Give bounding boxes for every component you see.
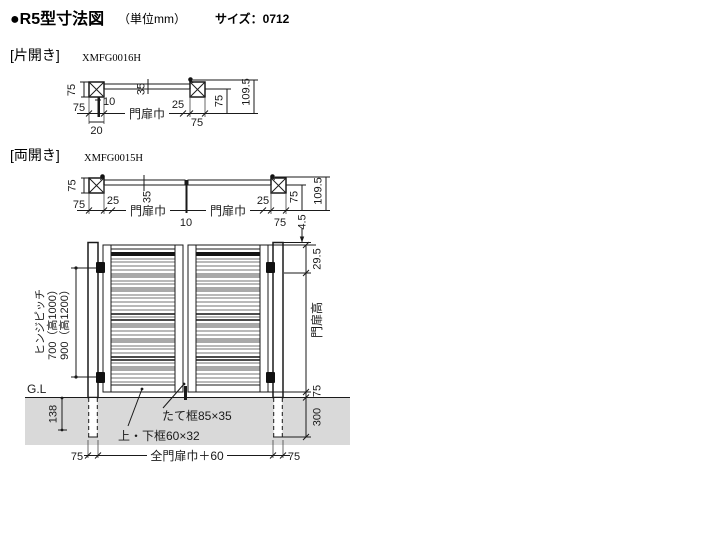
dim-25-right: 25 [257,195,269,207]
dim-25-left: 25 [107,195,119,207]
hinge-top-right [266,262,275,273]
hinge-pitch-label: ヒンジピッチ [34,289,47,355]
size-label: サイズ：0712 [215,11,290,26]
dim-gate-width-right: 門扉巾 [210,204,246,218]
page-title: ●R5型寸法図 [10,9,104,28]
dim-post-width-right: 75 [274,217,286,229]
single-swing-section: [片開き] XMFG0016H [10,47,258,137]
double-swing-code: XMFG0015H [84,153,143,164]
dim-75-right: 75 [214,95,226,107]
dim-25: 25 [172,99,184,111]
single-swing-label: [片開き] [10,47,60,63]
dim-35: 35 [142,191,154,203]
header: ●R5型寸法図 （単位mm） サイズ：0712 [10,9,290,28]
dim-29-5: 29.5 [312,248,324,269]
drawing-canvas: ●R5型寸法図 （単位mm） サイズ：0712 [片開き] XMFG0016H [0,0,720,540]
hinge-bottom-left [96,372,105,383]
elevation-drawing: ヒンジピッチ 700（高1000） 900（高1200） G.L 138 [25,214,350,463]
dim-post-height: 75 [67,179,79,191]
dim-gate-width: 門扉巾 [129,107,165,121]
callout-rail: 上・下框60×32 [118,429,200,443]
dim-75-gl: 75 [312,385,324,397]
dim-10-center: 10 [180,217,192,229]
single-swing-code: XMFG0016H [82,53,141,64]
single-swing-dimensions: 75 75 門扉巾 20 10 35 25 75 [66,78,258,137]
dim-post-width-right: 75 [191,117,203,129]
dim-post-width-left: 75 [73,199,85,211]
post-right-plan [190,82,205,97]
dim-total-109-5: 109.5 [313,177,325,205]
dim-post-width-left: 75 [73,102,85,114]
double-swing-section: [両開き] XMFG0015H [10,147,330,229]
hinge-pitch-700: 700（高1000） [45,284,59,360]
dim-75-bottom-right: 75 [288,451,300,463]
dim-10: 10 [103,96,115,108]
dim-gate-width-left: 門扉巾 [130,204,166,218]
dim-post-height: 75 [66,84,78,96]
dim-4-5: 4.5 [297,214,309,229]
double-swing-plan [89,174,286,213]
dimension-drawing-page: ●R5型寸法図 （単位mm） サイズ：0712 [片開き] XMFG0016H [0,0,720,540]
double-swing-label: [両開き] [10,147,60,163]
post-left-plan [89,178,104,193]
hinge-pitch-900: 900（高1200） [57,284,71,360]
dim-20: 20 [90,125,102,137]
hinge-bottom-right [266,372,275,383]
unit-label: （単位mm） [118,11,186,26]
hinge-top-left [96,262,105,273]
dim-total-109-5: 109.5 [241,78,253,106]
gate-panel-left [103,245,183,392]
dim-gate-height: 門扉高 [309,302,324,338]
post-right-plan [271,178,286,193]
post-left-plan [89,82,104,97]
dim-75-right: 75 [289,191,301,203]
svg-text:138: 138 [48,405,60,423]
hinge-pitch-dimension: ヒンジピッチ 700（高1000） 900（高1200） [34,266,97,378]
dim-300: 300 [312,408,324,426]
dim-35: 35 [136,83,148,95]
ground-level-label: G.L [27,382,47,396]
callout-stile: たて框85×35 [162,409,232,423]
gate-panel-right [188,245,268,392]
dim-total-width: 全門扉巾＋60 [150,448,224,463]
dim-75-bottom-left: 75 [71,451,83,463]
